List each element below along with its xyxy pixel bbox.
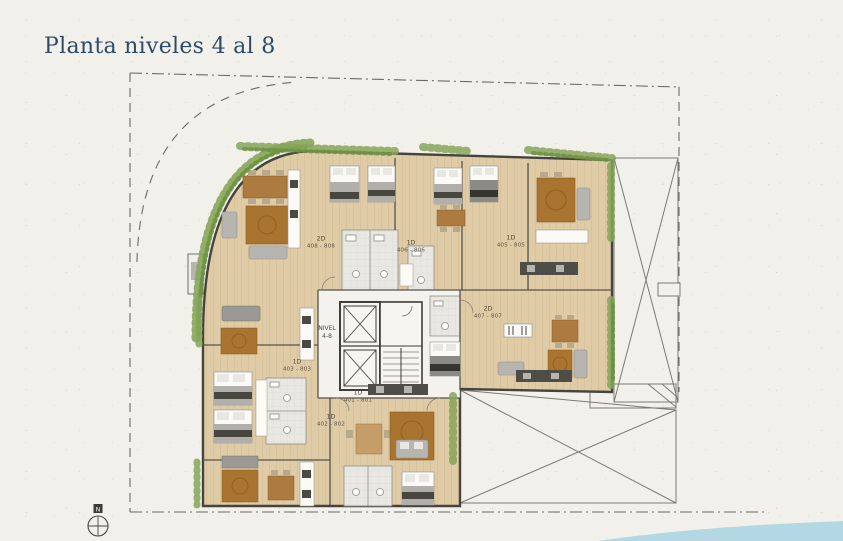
unit-type: 1D bbox=[293, 359, 302, 367]
unit-range: 407 - 807 bbox=[474, 313, 502, 320]
unit-range: 406 - 806 bbox=[397, 247, 425, 254]
compass-label: N bbox=[96, 507, 101, 514]
unit-type: 2D bbox=[317, 236, 326, 244]
unit-type: 1D bbox=[507, 235, 516, 243]
unit-type: 1D bbox=[354, 390, 363, 398]
core-level-label: NIVEL 4-8 bbox=[318, 325, 336, 341]
unit-type: 1D bbox=[407, 240, 416, 248]
staircase bbox=[380, 302, 422, 390]
unit-range: 408 - 808 bbox=[307, 243, 335, 250]
unit-label-402: 1D 402 - 802 bbox=[317, 414, 345, 429]
unit-label-407: 2D 407 - 807 bbox=[474, 306, 502, 321]
unit-type: 2D bbox=[484, 306, 493, 314]
unit-type: 1D bbox=[327, 414, 336, 422]
floorplan-drawing: N bbox=[0, 0, 843, 541]
unit-range: 402 - 802 bbox=[317, 421, 345, 428]
unit-range: 405 - 805 bbox=[497, 242, 525, 249]
core-level-line1: NIVEL bbox=[318, 325, 336, 333]
elevator-core bbox=[340, 302, 380, 390]
floorplan-page: N Planta niveles 4 al 8 2D 408 - 808 1D … bbox=[0, 0, 843, 541]
unit-range: 401 - 801 bbox=[344, 397, 372, 404]
water-feature bbox=[598, 521, 843, 541]
page-title: Planta niveles 4 al 8 bbox=[44, 34, 276, 59]
unit-label-406: 1D 406 - 806 bbox=[397, 240, 425, 255]
compass-icon: N bbox=[88, 504, 108, 536]
core-level-line2: 4-8 bbox=[322, 333, 332, 341]
unit-range: 403 - 803 bbox=[283, 366, 311, 373]
unit-label-401: 1D 401 - 801 bbox=[344, 390, 372, 405]
unit-label-403: 1D 403 - 803 bbox=[283, 359, 311, 374]
unit-label-405: 1D 405 - 805 bbox=[497, 235, 525, 250]
unit-label-408: 2D 408 - 808 bbox=[307, 236, 335, 251]
